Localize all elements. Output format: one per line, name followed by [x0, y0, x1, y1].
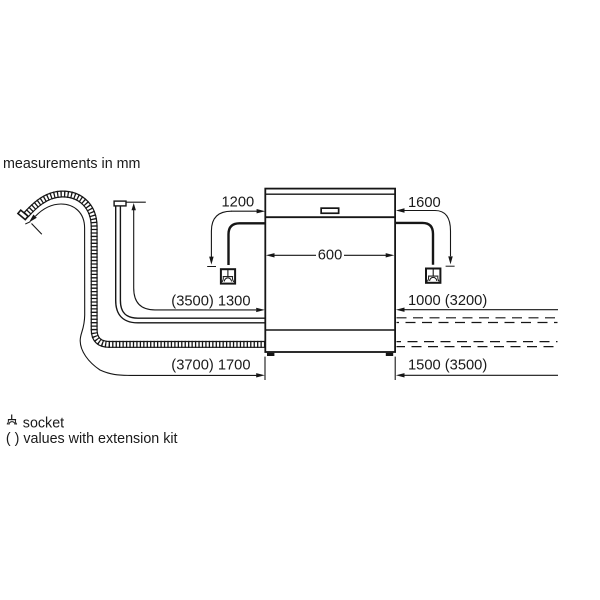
svg-text:600: 600 [318, 248, 343, 264]
svg-text:1500 (3500): 1500 (3500) [408, 358, 487, 374]
svg-text:1000 (3200): 1000 (3200) [408, 293, 487, 309]
svg-text:(3500) 1300: (3500) 1300 [171, 293, 250, 309]
svg-text:measurements in mm: measurements in mm [3, 156, 140, 172]
svg-text:socket: socket [23, 416, 64, 432]
svg-text:1200: 1200 [222, 194, 255, 210]
svg-text:1600: 1600 [408, 195, 441, 211]
svg-text:( ) values with extension kit: ( ) values with extension kit [6, 431, 178, 447]
svg-text:(3700) 1700: (3700) 1700 [171, 357, 250, 373]
